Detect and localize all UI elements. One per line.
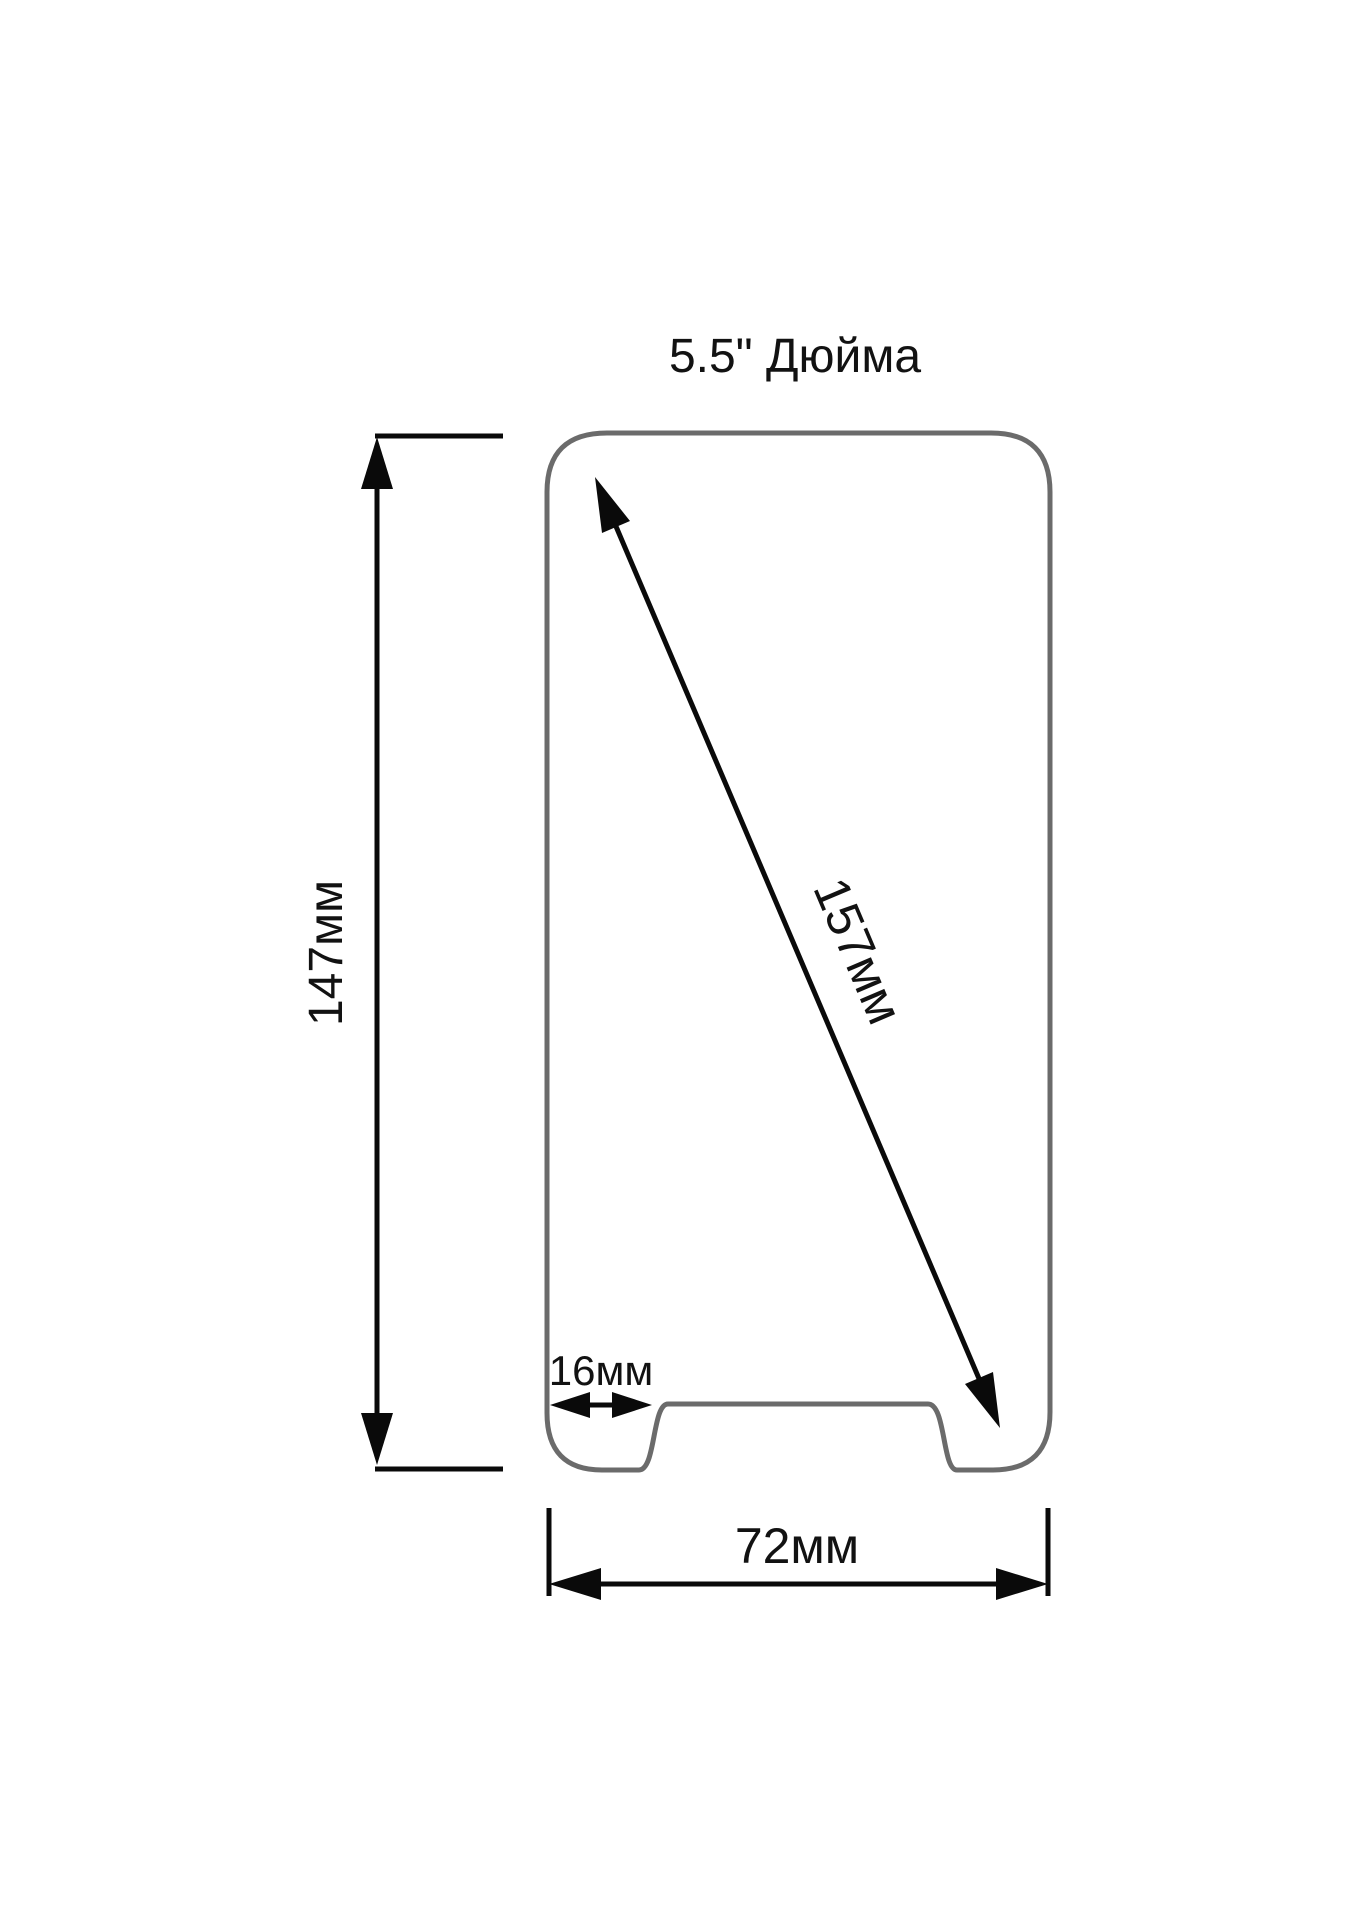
up-arrowhead-icon <box>361 437 393 489</box>
right-arrowhead-icon <box>996 1568 1048 1600</box>
width-dimension-label: 72мм <box>735 1518 859 1574</box>
down-arrowhead-icon <box>361 1413 393 1465</box>
notch-offset-dimension-label: 16мм <box>549 1347 653 1394</box>
height-dimension: 147мм <box>300 436 503 1469</box>
width-dimension: 72мм <box>549 1508 1048 1600</box>
notch-offset-dimension: 16мм <box>549 1347 653 1418</box>
up-left-arrowhead-icon <box>595 477 630 533</box>
dimension-diagram: 5.5" Дюйма 147мм 157мм 16мм 72мм <box>0 0 1353 1920</box>
right-arrowhead-icon <box>612 1392 652 1418</box>
diagram-title: 5.5" Дюйма <box>669 330 921 383</box>
height-dimension-label: 147мм <box>300 880 353 1026</box>
diagonal-dimension: 157мм <box>595 477 1000 1428</box>
left-arrowhead-icon <box>550 1392 590 1418</box>
left-arrowhead-icon <box>549 1568 601 1600</box>
diagonal-dimension-line <box>612 517 983 1388</box>
down-right-arrowhead-icon <box>965 1372 1000 1428</box>
